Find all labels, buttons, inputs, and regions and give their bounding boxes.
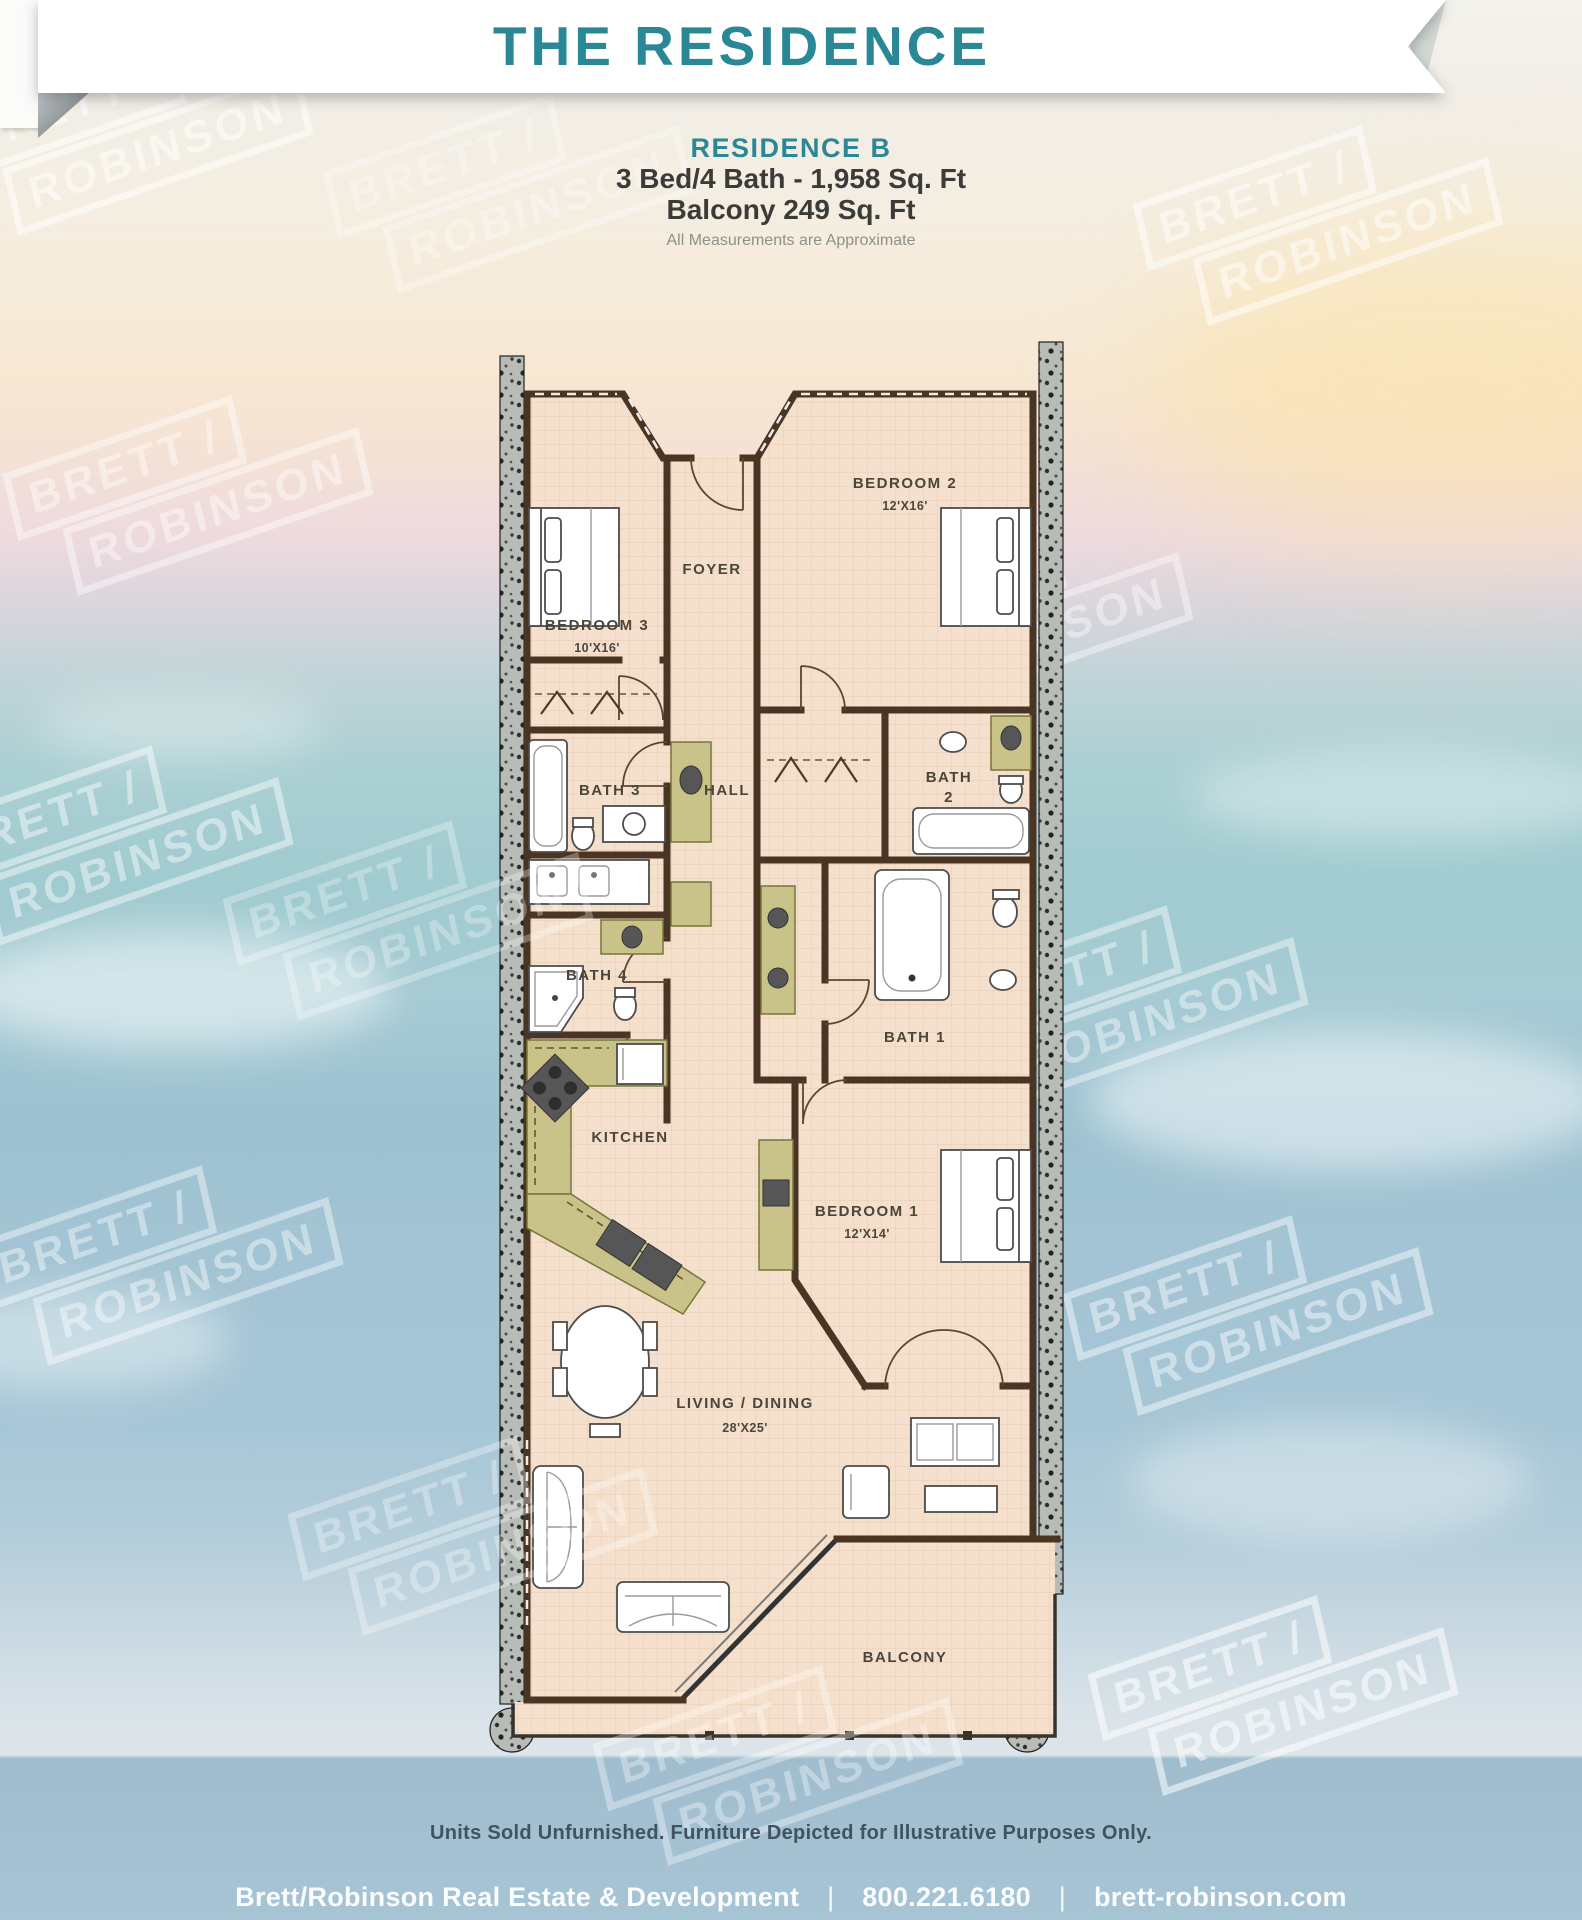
brett-robinson-watermark: BRETT /ROBINSON bbox=[0, 382, 377, 591]
brett-robinson-watermark: BRETT /ROBINSON bbox=[1085, 1582, 1463, 1791]
measurements-note: All Measurements are Approximate bbox=[0, 232, 1582, 250]
bed-icon bbox=[529, 508, 619, 626]
surf-highlight bbox=[40, 690, 320, 760]
spec-bed-bath: 3 Bed/4 Bath - 1,958 Sq. Ft bbox=[0, 163, 1582, 194]
bathtub-icon bbox=[913, 808, 1029, 854]
room-label-bedroom-3: BEDROOM 3 bbox=[545, 617, 649, 634]
residence-name: RESIDENCE B bbox=[0, 133, 1582, 163]
surf-highlight bbox=[1130, 1420, 1530, 1540]
sofa-icon bbox=[533, 1466, 583, 1588]
bedroom1-closet bbox=[759, 1140, 793, 1270]
banner-fold bbox=[38, 92, 90, 138]
room-label-bath-3: BATH 3 bbox=[579, 782, 641, 799]
watermark-text-line2: ROBINSON bbox=[0, 777, 294, 946]
double-vanity bbox=[529, 860, 649, 904]
room-label-kitchen: KITCHEN bbox=[591, 1129, 668, 1146]
loveseat-icon bbox=[617, 1582, 729, 1632]
armchair-icon bbox=[843, 1466, 889, 1518]
surf-highlight bbox=[1190, 750, 1582, 840]
room-dims-bedroom-2: 12'X16' bbox=[882, 499, 928, 513]
room-label-bath-4: BATH 4 bbox=[566, 967, 628, 984]
residence-header: RESIDENCE B 3 Bed/4 Bath - 1,958 Sq. Ft … bbox=[0, 133, 1582, 250]
room-dims-bedroom-3: 10'X16' bbox=[574, 641, 620, 655]
banner-left-tab bbox=[0, 0, 40, 128]
room-label-bath-2-line2: 2 bbox=[944, 789, 954, 806]
watermark-text-line1: BRETT / bbox=[1088, 1595, 1333, 1741]
refrigerator-icon bbox=[617, 1044, 663, 1084]
footer-separator: | bbox=[827, 1882, 834, 1912]
floor-plan: BEDROOM 2 12'X16' FOYER BEDROOM 3 10'X16… bbox=[405, 290, 1065, 1760]
toilet-icon bbox=[614, 988, 636, 1020]
sink-icon bbox=[990, 970, 1016, 990]
brett-robinson-watermark: BRETT /ROBINSON bbox=[0, 732, 297, 941]
room-label-bedroom-2: BEDROOM 2 bbox=[853, 475, 957, 492]
room-label-bath-1: BATH 1 bbox=[884, 1029, 946, 1046]
surf-highlight bbox=[0, 1290, 230, 1390]
tv-console-icon bbox=[911, 1418, 999, 1512]
page-title: THE RESIDENCE bbox=[38, 0, 1446, 93]
flyer-page: BRETT /ROBINSONBRETT /ROBINSONBRETT /ROB… bbox=[0, 0, 1582, 1920]
footer-separator: | bbox=[1059, 1882, 1066, 1912]
brett-robinson-watermark: BRETT /ROBINSON bbox=[1060, 1202, 1438, 1411]
title-banner: THE RESIDENCE bbox=[38, 0, 1446, 93]
room-dims-living-dining: 28'X25' bbox=[722, 1421, 768, 1435]
website-url: brett-robinson.com bbox=[1094, 1882, 1347, 1912]
watermark-text-line2: ROBINSON bbox=[62, 427, 373, 596]
footer-contact-line: Brett/Robinson Real Estate & Development… bbox=[0, 1882, 1582, 1913]
surf-highlight bbox=[0, 930, 390, 1050]
room-label-living-dining: LIVING / DINING bbox=[676, 1395, 814, 1412]
watermark-text-line1: BRETT / bbox=[1063, 1215, 1308, 1361]
bed-icon bbox=[941, 508, 1031, 626]
toilet-icon bbox=[999, 776, 1023, 803]
bed-icon bbox=[941, 1150, 1031, 1262]
phone-number: 800.221.6180 bbox=[862, 1882, 1031, 1912]
surf-highlight bbox=[1090, 1030, 1582, 1170]
room-label-hall: HALL bbox=[704, 782, 750, 799]
company-name: Brett/Robinson Real Estate & Development bbox=[235, 1882, 799, 1912]
watermark-text-line1: BRETT / bbox=[0, 745, 167, 891]
washer-dryer-icon bbox=[761, 886, 795, 1014]
room-label-foyer: FOYER bbox=[682, 561, 741, 578]
toilet-icon bbox=[993, 890, 1019, 927]
bathtub-icon bbox=[529, 740, 567, 852]
watermark-text-line1: BRETT / bbox=[0, 1165, 217, 1311]
unfurnished-disclaimer: Units Sold Unfurnished. Furniture Depict… bbox=[0, 1822, 1582, 1845]
spec-balcony: Balcony 249 Sq. Ft bbox=[0, 194, 1582, 225]
room-label-bath-2-line1: BATH bbox=[926, 769, 973, 786]
sunset-glow bbox=[1150, 230, 1582, 550]
watermark-text-line2: ROBINSON bbox=[1147, 1627, 1458, 1796]
toilet-icon bbox=[572, 818, 594, 850]
sink-icon bbox=[603, 806, 665, 842]
room-dims-bedroom-1: 12'X14' bbox=[844, 1227, 890, 1241]
room-label-balcony: BALCONY bbox=[863, 1649, 948, 1666]
bathtub-icon bbox=[875, 870, 949, 1000]
room-label-bedroom-1: BEDROOM 1 bbox=[815, 1203, 919, 1220]
watermark-text-line2: ROBINSON bbox=[1122, 1247, 1433, 1416]
sink-icon bbox=[601, 920, 663, 954]
linen-cabinet bbox=[671, 742, 711, 926]
watermark-text-line1: BRETT / bbox=[3, 395, 248, 541]
